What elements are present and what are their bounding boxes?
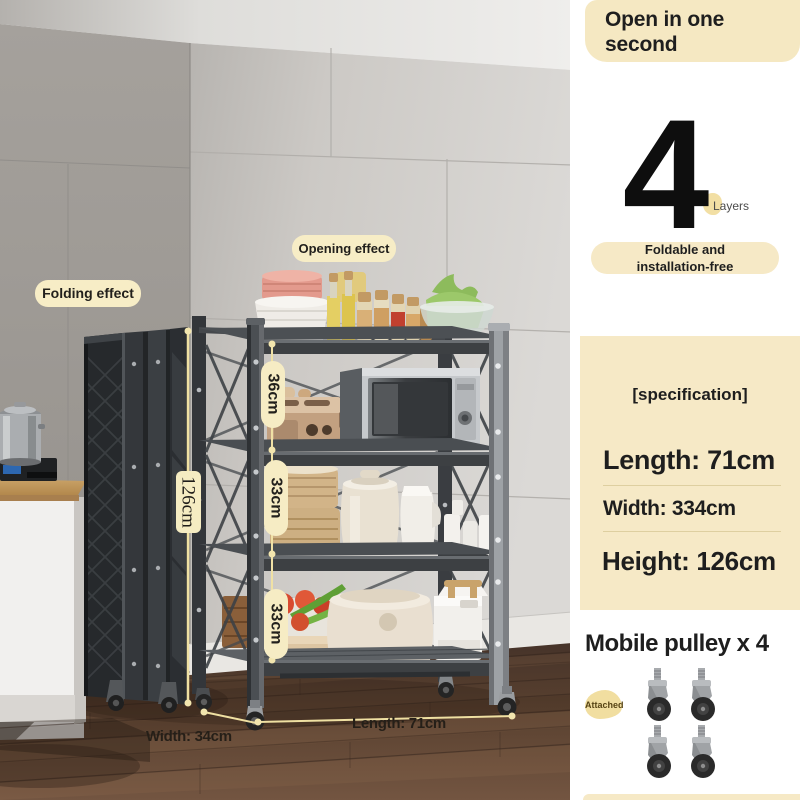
svg-text:126cm: 126cm	[178, 476, 199, 528]
svg-text:33cm: 33cm	[268, 478, 285, 519]
svg-text:Opening effect: Opening effect	[298, 241, 390, 256]
svg-text:Length: 71cm: Length: 71cm	[352, 715, 446, 732]
svg-text:Folding effect: Folding effect	[42, 285, 134, 301]
svg-text:33cm: 33cm	[268, 604, 285, 645]
svg-text:36cm: 36cm	[265, 374, 282, 415]
svg-text:Width: 34cm: Width: 34cm	[146, 728, 232, 745]
